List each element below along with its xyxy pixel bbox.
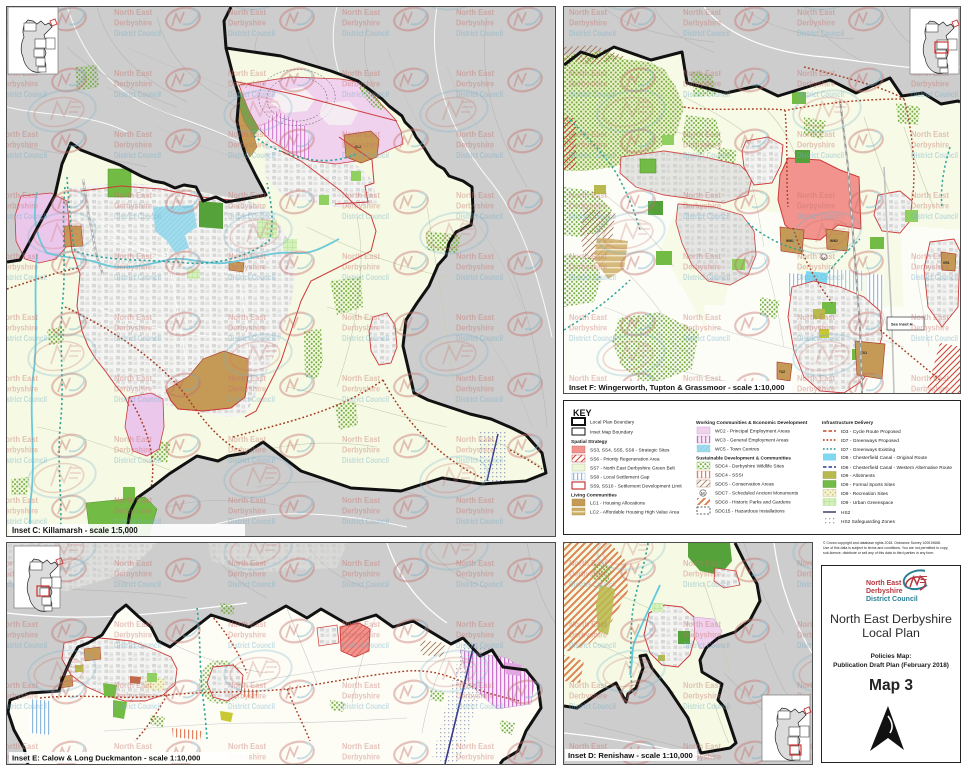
svg-text:Inset D: Renishaw - scale 1:10: Inset D: Renishaw - scale 1:10,000	[568, 751, 693, 760]
svg-text:SS6 - Priority Regeneration Ar: SS6 - Priority Regeneration Area	[590, 457, 660, 463]
svg-text:HS2: HS2	[841, 510, 851, 516]
svg-text:ID8 - Chesterfield Canal - Wes: ID8 - Chesterfield Canal - Western Alter…	[841, 465, 952, 471]
svg-text:ID9 - Urban Greenspace: ID9 - Urban Greenspace	[841, 500, 894, 506]
svg-text:Inset C: Killamarsh - scale 1:: Inset C: Killamarsh - scale 1:5,000	[12, 526, 138, 535]
svg-text:ID7 - Greenways Existing: ID7 - Greenways Existing	[841, 447, 895, 453]
svg-text:SDC5 - Conservation Areas: SDC5 - Conservation Areas	[715, 482, 775, 488]
svg-text:Policies Map:: Policies Map:	[871, 653, 912, 660]
svg-text:Inset E: Calow & Long Duckmant: Inset E: Calow & Long Duckmanton - scale…	[12, 754, 200, 763]
svg-text:ID9 - Formal Sports Sites: ID9 - Formal Sports Sites	[841, 482, 895, 488]
svg-text:ID7 - Greenways Proposed: ID7 - Greenways Proposed	[841, 438, 899, 444]
svg-text:SS9, SS10 - Settlement Develop: SS9, SS10 - Settlement Development Limit	[590, 484, 682, 490]
svg-text:ID9 - Recreation Sites: ID9 - Recreation Sites	[841, 491, 889, 497]
svg-text:North East: North East	[866, 580, 902, 587]
svg-text:WC3 - General Employment Areas: WC3 - General Employment Areas	[715, 438, 789, 444]
svg-text:SS8 - Local Settlement Gap: SS8 - Local Settlement Gap	[590, 475, 650, 481]
svg-text:WC2 - Principal Employment Are: WC2 - Principal Employment Areas	[715, 429, 791, 435]
svg-text:District Council: District Council	[866, 596, 918, 603]
svg-text:ID8 - Chesterfield Canal - Ori: ID8 - Chesterfield Canal - Original Rout…	[841, 455, 927, 461]
svg-text:LC2 - Affordable Housing High: LC2 - Affordable Housing High Value Area	[590, 510, 679, 516]
svg-text:Derbyshire: Derbyshire	[866, 588, 903, 595]
svg-text:SDC4 - SSSI: SDC4 - SSSI	[715, 473, 743, 479]
svg-text:North East Derbyshire: North East Derbyshire	[830, 612, 952, 626]
svg-text:LC1 - Housing Allocations: LC1 - Housing Allocations	[590, 501, 646, 507]
svg-text:SDC7 - Scheduled Ancient Monum: SDC7 - Scheduled Ancient Monuments	[715, 491, 799, 497]
svg-text:KEY: KEY	[573, 408, 592, 418]
svg-text:Inset F: Wingerworth, Tupton &: Inset F: Wingerworth, Tupton & Grassmoor…	[569, 383, 785, 392]
svg-text:SDC4 - Derbyshire Wildlife Sit: SDC4 - Derbyshire Wildlife Sites	[715, 464, 785, 470]
svg-text:M: M	[701, 491, 705, 496]
svg-text:SDC8 - Historic Parks and Gard: SDC8 - Historic Parks and Gardens	[715, 500, 791, 506]
svg-text:WC5 - Town Centres: WC5 - Town Centres	[715, 447, 760, 453]
svg-text:Local Plan Boundary: Local Plan Boundary	[590, 420, 635, 426]
svg-text:Local Plan: Local Plan	[862, 626, 920, 640]
svg-text:SDC15 - Hazardous Installation: SDC15 - Hazardous Installations	[715, 509, 785, 515]
svg-text:Living Communities: Living Communities	[571, 493, 617, 499]
svg-text:Sustainable Development & Comm: Sustainable Development & Communities	[696, 456, 791, 462]
svg-text:Publication Draft Plan (Februa: Publication Draft Plan (February 2018)	[833, 662, 949, 669]
svg-text:Inset Map Boundary: Inset Map Boundary	[590, 430, 634, 436]
svg-text:HS2 Safeguarding Zones: HS2 Safeguarding Zones	[841, 519, 895, 525]
svg-text:Infrastructure Delivery: Infrastructure Delivery	[822, 420, 874, 426]
svg-text:SS3, SS4, SS5, SS6 - Strategic: SS3, SS4, SS5, SS6 - Strategic Sites	[590, 448, 670, 454]
svg-text:ID3 - Cycle Route Proposed: ID3 - Cycle Route Proposed	[841, 429, 901, 435]
svg-text:ID9 - Allotments: ID9 - Allotments	[841, 473, 875, 479]
svg-text:SS7 - North East Derbyshire Gr: SS7 - North East Derbyshire Green Belt	[590, 466, 675, 472]
svg-text:Working Communities & Economic: Working Communities & Economic Developme…	[696, 420, 808, 426]
svg-text:Spatial Strategy: Spatial Strategy	[571, 439, 608, 445]
svg-text:Map 3: Map 3	[869, 677, 913, 694]
